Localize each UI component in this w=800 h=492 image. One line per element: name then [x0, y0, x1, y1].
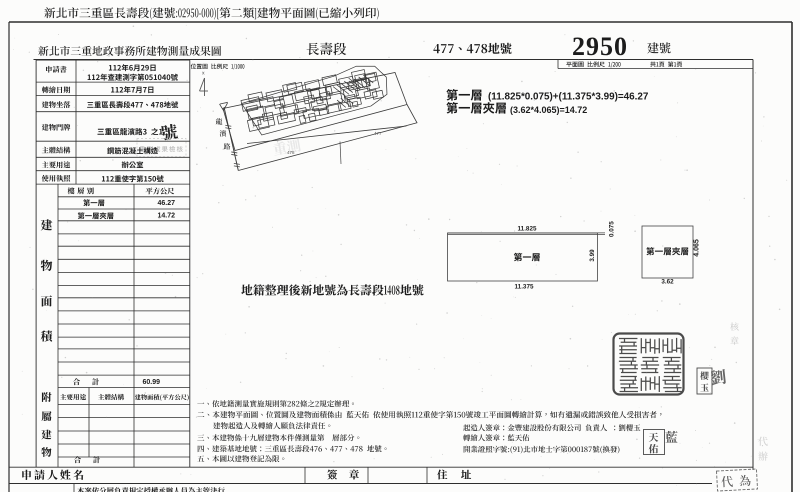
- svg-text:478: 478: [287, 150, 295, 155]
- svg-text:3.62: 3.62: [661, 279, 674, 286]
- svg-text:14.72: 14.72: [157, 213, 175, 220]
- svg-text:3.99: 3.99: [589, 249, 596, 262]
- svg-text:477: 477: [374, 131, 382, 136]
- svg-text:11.825: 11.825: [518, 226, 537, 233]
- svg-text:2950: 2950: [572, 32, 628, 61]
- svg-text:11.375: 11.375: [515, 284, 534, 291]
- svg-text:(11.825*0.075)+(11.375*3.99)=4: (11.825*0.075)+(11.375*3.99)=46.27: [488, 92, 649, 103]
- svg-text:60.99: 60.99: [142, 379, 160, 386]
- svg-text:4.065: 4.065: [694, 239, 701, 257]
- svg-text:(3.62*4.065)=14.72: (3.62*4.065)=14.72: [510, 105, 587, 115]
- svg-text:0.075: 0.075: [609, 221, 616, 237]
- svg-text:46.27: 46.27: [157, 200, 175, 207]
